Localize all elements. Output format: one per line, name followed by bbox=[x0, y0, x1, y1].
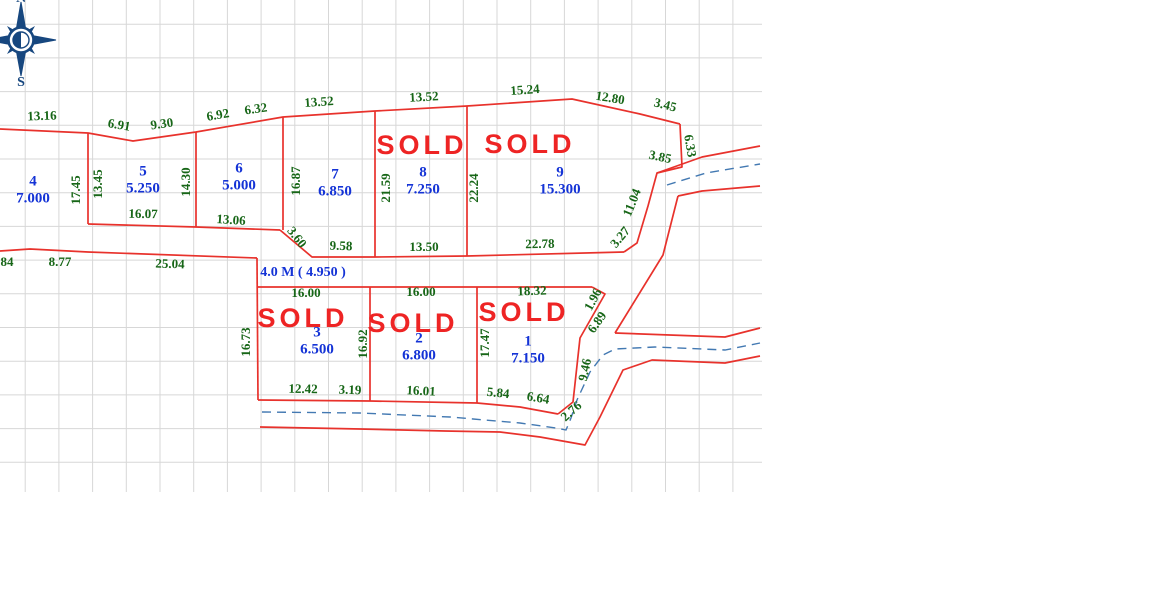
dimension-label: 22.78 bbox=[525, 236, 555, 252]
parcel-boundary bbox=[615, 196, 678, 333]
dimension-label: 1.96 bbox=[581, 285, 605, 313]
dimension-label: 11.04 bbox=[619, 186, 644, 219]
graph-paper-grid bbox=[0, 0, 762, 492]
plot-number: 9 bbox=[556, 164, 564, 180]
parcel-boundary bbox=[258, 400, 558, 414]
dimension-label: 2.76 bbox=[558, 397, 585, 424]
dimension-label: 12.42 bbox=[288, 381, 318, 397]
dimension-label: 8.77 bbox=[49, 254, 72, 269]
plot-area: 6.800 bbox=[402, 347, 436, 363]
dimension-label: 3.45 bbox=[653, 95, 679, 115]
parcel-boundary bbox=[88, 224, 280, 230]
plot-area: 7.150 bbox=[511, 350, 545, 366]
dimension-label: 3.27 bbox=[607, 223, 633, 250]
plot-area: 7.250 bbox=[406, 181, 440, 197]
sold-mark: SOLD bbox=[376, 130, 467, 160]
dimension-label: 13.06 bbox=[216, 211, 247, 228]
dimension-label: 6.33 bbox=[681, 133, 700, 159]
site-plan-map: N S 013.166.919.306.926.3213.5213.5215.2… bbox=[0, 0, 1170, 615]
compass-rose-icon bbox=[0, 2, 56, 76]
dimension-label: 17.47 bbox=[477, 328, 492, 358]
plot-area: 6.500 bbox=[300, 341, 334, 357]
dimension-label: 22.24 bbox=[466, 173, 481, 203]
plot-number: 8 bbox=[419, 164, 427, 180]
parcel-boundary bbox=[0, 249, 257, 258]
dimension-label: 6.89 bbox=[584, 308, 610, 336]
dimension-label: 16.73 bbox=[238, 327, 253, 357]
parcel-boundary bbox=[615, 328, 760, 337]
sold-mark: SOLD bbox=[367, 308, 458, 338]
dimension-label: 13.16 bbox=[27, 107, 57, 123]
plot-area: 6.850 bbox=[318, 183, 352, 199]
dimension-label: 9.58 bbox=[329, 238, 353, 254]
dimension-label: 14.30 bbox=[178, 167, 193, 196]
dimension-label: 6.91 bbox=[107, 115, 132, 134]
plot-area: 7.000 bbox=[16, 190, 50, 206]
plot-number: 6 bbox=[235, 160, 243, 176]
dimension-label: 13.52 bbox=[304, 93, 334, 110]
sold-mark: SOLD bbox=[478, 297, 569, 327]
dimension-label: 16.01 bbox=[406, 382, 436, 399]
dimension-label: 9.30 bbox=[149, 114, 174, 132]
dimension-label: 16.07 bbox=[128, 206, 158, 222]
dimension-label: 6.32 bbox=[243, 99, 268, 117]
dimension-label: 13.45 bbox=[90, 169, 105, 199]
plot-area: 5.250 bbox=[126, 180, 160, 196]
dimension-label: 21.59 bbox=[378, 173, 393, 203]
parcel-boundary bbox=[678, 186, 760, 196]
dimension-label: 16.87 bbox=[288, 166, 303, 196]
plot-number: 7 bbox=[331, 166, 339, 182]
dimension-label: 3.60 bbox=[284, 223, 310, 250]
dimension-label: 3.19 bbox=[338, 382, 362, 398]
plot-area: 5.000 bbox=[222, 177, 256, 193]
dimension-label: 5.84 bbox=[486, 384, 511, 401]
plot-area: 15.300 bbox=[539, 181, 580, 197]
road-width-label: 4.0 M ( 4.950 ) bbox=[260, 265, 346, 280]
dimension-label: 18.32 bbox=[517, 282, 547, 298]
dimension-label: 3.85 bbox=[648, 147, 674, 167]
parcel-boundary bbox=[0, 99, 680, 141]
dimension-label: 16.00 bbox=[291, 285, 320, 300]
dimension-label: 17.45 bbox=[68, 175, 83, 205]
plot-number: 1 bbox=[524, 333, 532, 349]
compass-south-label: S bbox=[17, 75, 25, 90]
dimension-label: 25.04 bbox=[155, 255, 185, 271]
dimension-label: 15.24 bbox=[510, 81, 541, 98]
dimension-label: 13.52 bbox=[409, 88, 439, 105]
dimension-label: 6.92 bbox=[205, 105, 230, 124]
dimension-label: 6.64 bbox=[526, 388, 552, 407]
cadastral-map-canvas: N S 013.166.919.306.926.3213.5213.5215.2… bbox=[0, 0, 1170, 615]
dimension-label: 84 bbox=[1, 254, 15, 269]
plot-number: 5 bbox=[139, 163, 147, 179]
sold-mark: SOLD bbox=[257, 303, 348, 333]
plot-number: 4 bbox=[29, 173, 37, 189]
sold-mark: SOLD bbox=[484, 129, 575, 159]
dimension-label: 13.50 bbox=[409, 239, 438, 254]
dimension-label: 16.00 bbox=[406, 284, 435, 299]
compass-north-label: N bbox=[16, 0, 26, 6]
